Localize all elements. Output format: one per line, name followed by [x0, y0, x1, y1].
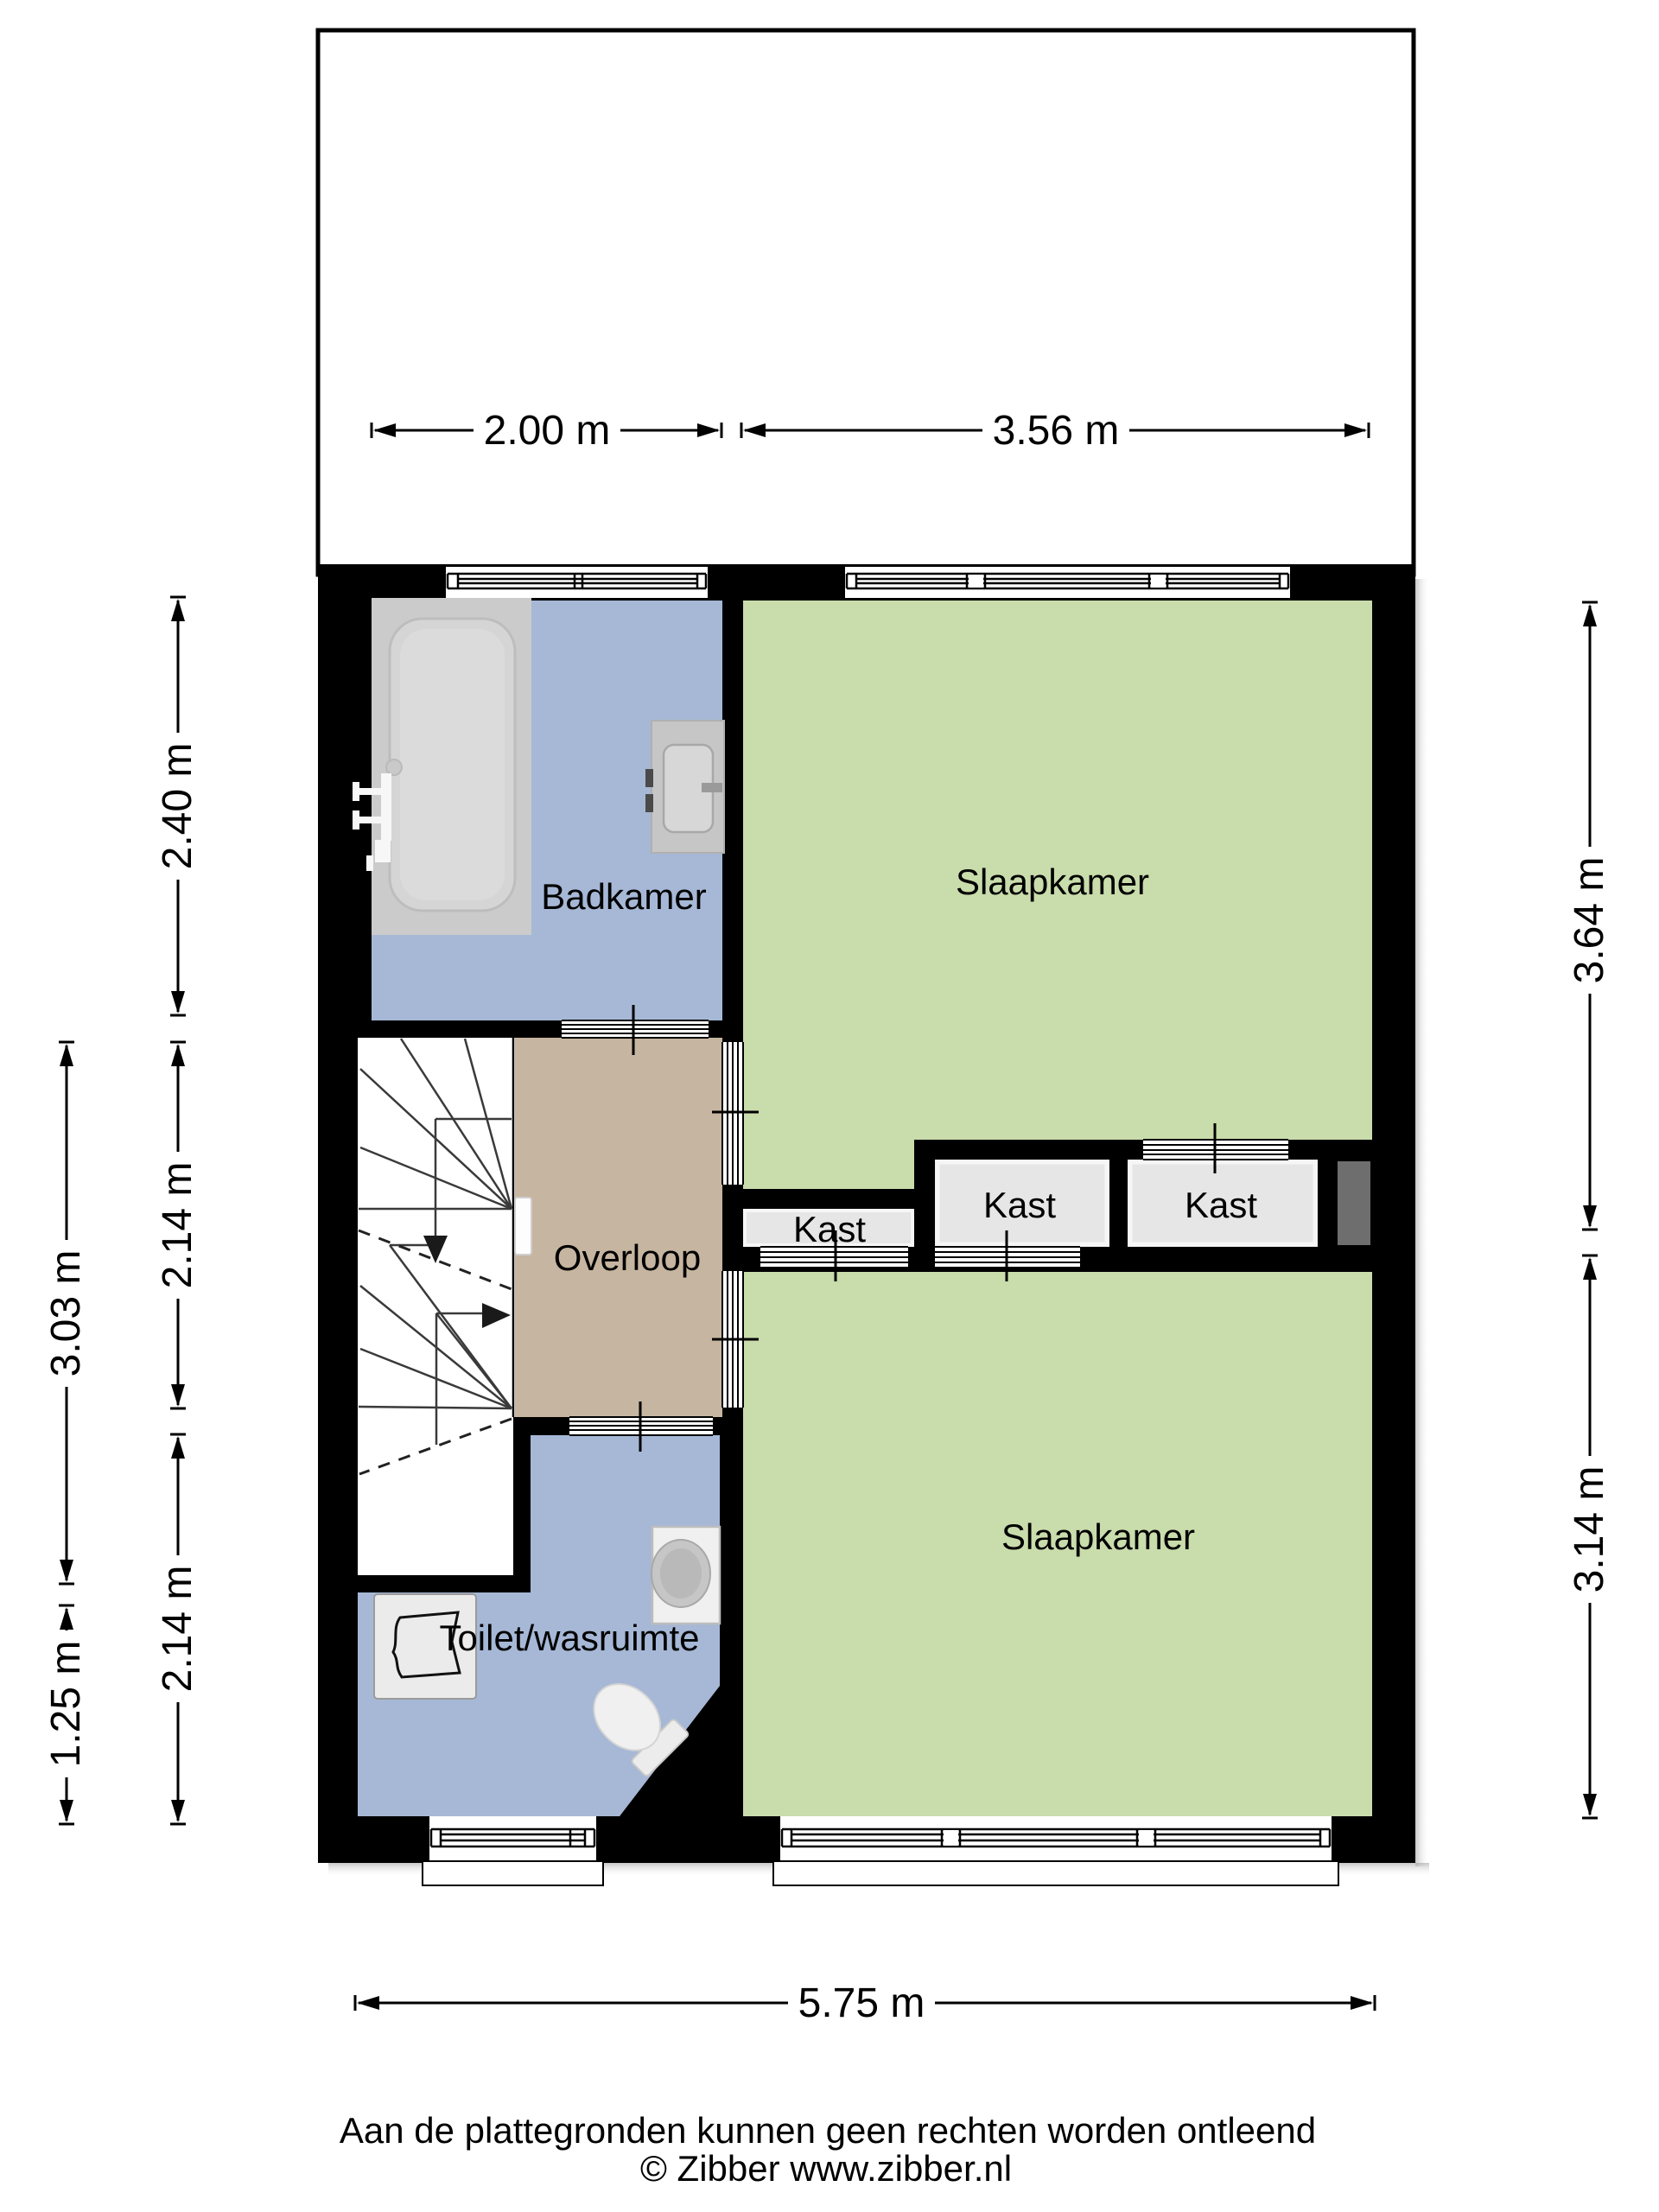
svg-text:3.03 m: 3.03 m [43, 1250, 89, 1377]
svg-text:5.75 m: 5.75 m [798, 1980, 925, 2026]
svg-text:Toilet/wasruimte: Toilet/wasruimte [439, 1618, 699, 1658]
svg-text:Kast: Kast [793, 1209, 866, 1249]
svg-text:Slaapkamer: Slaapkamer [956, 861, 1149, 902]
svg-text:© Zibber www.zibber.nl: © Zibber www.zibber.nl [640, 2148, 1012, 2189]
svg-text:2.14 m: 2.14 m [155, 1566, 200, 1693]
svg-text:2.14 m: 2.14 m [155, 1162, 200, 1289]
svg-text:Slaapkamer: Slaapkamer [1001, 1516, 1195, 1557]
svg-text:3.64 m: 3.64 m [1567, 857, 1612, 984]
svg-text:3.56 m: 3.56 m [993, 408, 1120, 454]
svg-text:Kast: Kast [983, 1185, 1056, 1225]
svg-text:2.40 m: 2.40 m [155, 743, 200, 870]
svg-text:Kast: Kast [1185, 1185, 1257, 1225]
svg-text:3.14 m: 3.14 m [1567, 1466, 1612, 1593]
svg-text:Aan de plattegronden kunnen ge: Aan de plattegronden kunnen geen rechten… [340, 2110, 1316, 2151]
svg-text:2.00 m: 2.00 m [484, 408, 611, 454]
svg-text:Overloop: Overloop [554, 1237, 701, 1278]
svg-text:1.25 m: 1.25 m [43, 1641, 89, 1768]
svg-text:Badkamer: Badkamer [541, 876, 706, 917]
